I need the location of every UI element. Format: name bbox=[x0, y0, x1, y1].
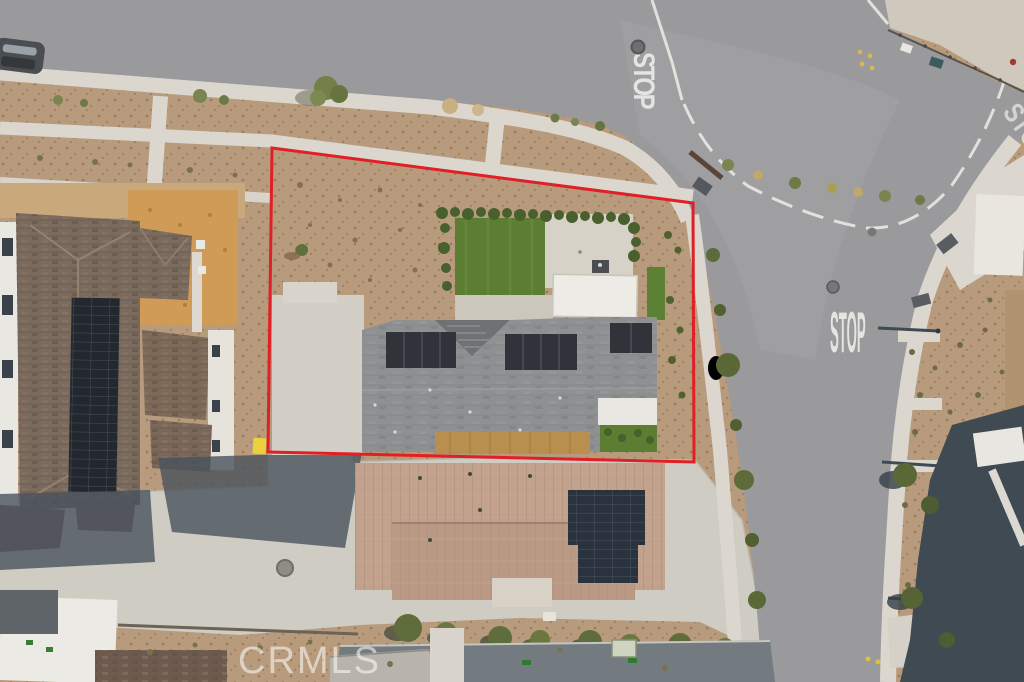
stop-marking-top: STOP bbox=[627, 52, 661, 110]
parked-car bbox=[0, 37, 46, 75]
turf-side-strip bbox=[647, 267, 665, 320]
lower-white-roof bbox=[598, 398, 657, 425]
aerial-photo: STOP STOP STOP bbox=[0, 0, 1024, 682]
subject-house bbox=[362, 317, 657, 454]
manhole-small bbox=[868, 228, 877, 237]
watermark: CRMLS bbox=[238, 640, 381, 682]
utility-box bbox=[612, 640, 636, 657]
entry-walk bbox=[430, 628, 464, 682]
stop-marking-right: STOP bbox=[830, 300, 866, 365]
dark-roof-section bbox=[0, 590, 58, 634]
right-white-roof bbox=[973, 427, 1024, 467]
ac-unit-1 bbox=[196, 240, 205, 249]
manhole-top-road bbox=[632, 41, 645, 54]
right-edge-dirt bbox=[1005, 290, 1024, 410]
wood-deck bbox=[435, 432, 590, 454]
south-courtyard bbox=[492, 578, 552, 607]
fire-hydrant bbox=[1010, 59, 1016, 65]
aerial-scene: STOP STOP STOP bbox=[0, 0, 1024, 682]
casita-white-roof bbox=[553, 274, 638, 317]
left-neighbor-lower-wing bbox=[142, 330, 234, 472]
manhole-right-road bbox=[827, 281, 839, 293]
small-pad bbox=[543, 612, 556, 621]
ac-unit-2 bbox=[198, 266, 206, 274]
manhole-driveway bbox=[277, 560, 293, 576]
yellow-curb-mark bbox=[252, 438, 266, 455]
lot-bush bbox=[296, 244, 308, 256]
yard-path bbox=[192, 252, 202, 332]
court-walk bbox=[283, 282, 337, 303]
skylight-panel-left bbox=[386, 332, 456, 368]
right-edge-white-roof bbox=[974, 194, 1024, 276]
motor-court bbox=[272, 295, 364, 455]
walk-connector-4 bbox=[902, 398, 942, 410]
